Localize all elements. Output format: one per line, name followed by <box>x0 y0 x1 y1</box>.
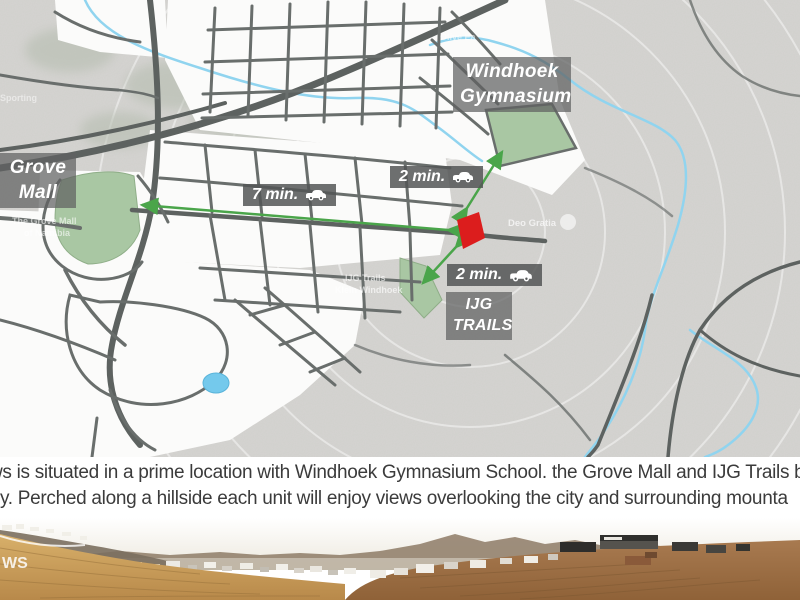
car-icon <box>509 269 533 282</box>
grove-mall-label-line1: Grove <box>7 156 69 181</box>
grove-mall-label-line2: Mall <box>7 181 69 206</box>
map-placename-olive: Olive Ea <box>440 32 477 42</box>
travel-badge-ijg: 2 min. <box>447 264 542 286</box>
description-text: ws is situated in a prime location with … <box>0 457 800 518</box>
ijg-trails-label-line1: IJG <box>453 295 505 316</box>
description-line-2: y. Perched along a hillside each unit wi… <box>0 488 788 510</box>
photo-watermark: WS <box>2 555 28 572</box>
ijg-trails-label-line2: TRAILS <box>453 316 505 337</box>
pond <box>203 373 229 393</box>
travel-badge-gymnasium-time: 2 min. <box>399 168 445 186</box>
travel-badge-grove-time: 7 min. <box>252 186 298 204</box>
car-icon <box>305 189 327 201</box>
travel-badge-gymnasium: 2 min. <box>390 166 483 188</box>
gymnasium-label-line1: Windhoek <box>460 60 564 85</box>
map-placename-deo-gratia: Deo Gratia <box>508 218 557 229</box>
grove-mall-label: Grove Mall <box>0 153 76 208</box>
property-flyer: Deo Gratia IJG Trails Klein Windhoek The… <box>0 0 800 600</box>
gymnasium-label: Windhoek Gymnasium <box>453 57 571 112</box>
panorama-canvas: WS <box>0 518 800 600</box>
map-placename-sporting: Sporting <box>0 93 37 103</box>
description-line-1: ws is situated in a prime location with … <box>0 462 800 484</box>
map-placename-ijg-small-2: Klein Windhoek <box>335 285 403 295</box>
map-canvas: Deo Gratia IJG Trails Klein Windhoek The… <box>0 0 800 457</box>
map-placename-grove-small-1: The Grove Mall <box>12 216 77 226</box>
location-map: Deo Gratia IJG Trails Klein Windhoek The… <box>0 0 800 457</box>
car-icon <box>452 171 474 183</box>
ijg-trails-label: IJG TRAILS <box>446 292 512 340</box>
travel-badge-grove: 7 min. <box>243 184 336 206</box>
map-placename-grove-small-2: of Namibia <box>24 228 71 238</box>
panorama-photo: WS <box>0 518 800 600</box>
travel-badge-ijg-time: 2 min. <box>456 266 502 284</box>
gymnasium-label-line2: Gymnasium <box>460 85 564 110</box>
map-placename-ijg-small-1: IJG Trails <box>345 273 386 283</box>
